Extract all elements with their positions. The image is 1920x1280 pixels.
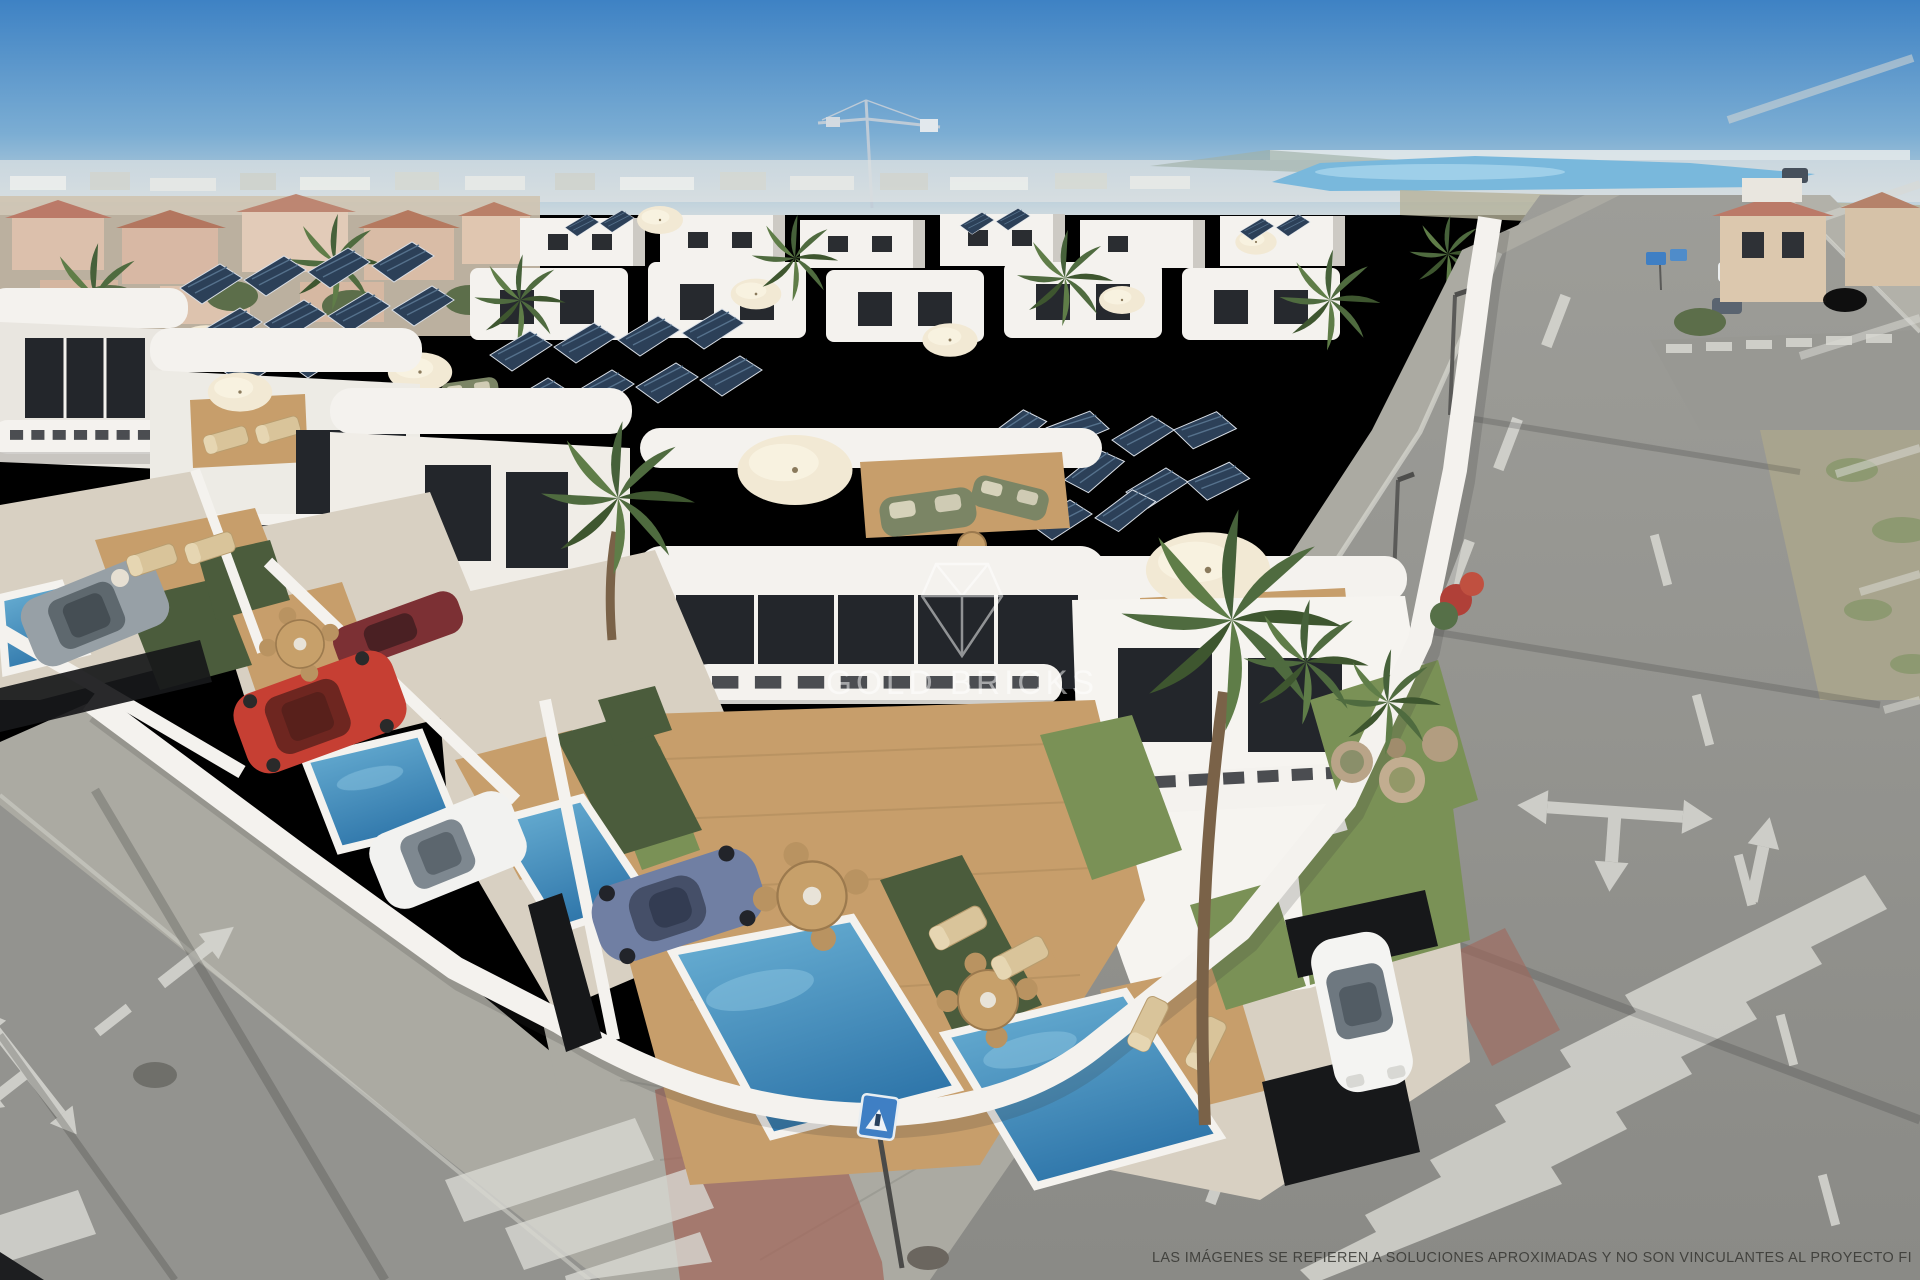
disclaimer-text: LAS IMÁGENES SE REFIEREN A SOLUCIONES AP… [1152, 1249, 1912, 1266]
lagoon-highlight [1315, 164, 1565, 180]
manhole-corner [907, 1246, 949, 1270]
render-canvas: GOLD BRICKS LAS IMÁGENES SE REFIEREN A S… [0, 0, 1920, 1280]
side-table [111, 569, 129, 587]
property-render-image: GOLD BRICKS LAS IMÁGENES SE REFIEREN A S… [0, 0, 1920, 1280]
manhole-left [133, 1062, 177, 1088]
watermark-text: GOLD BRICKS [826, 664, 1098, 702]
